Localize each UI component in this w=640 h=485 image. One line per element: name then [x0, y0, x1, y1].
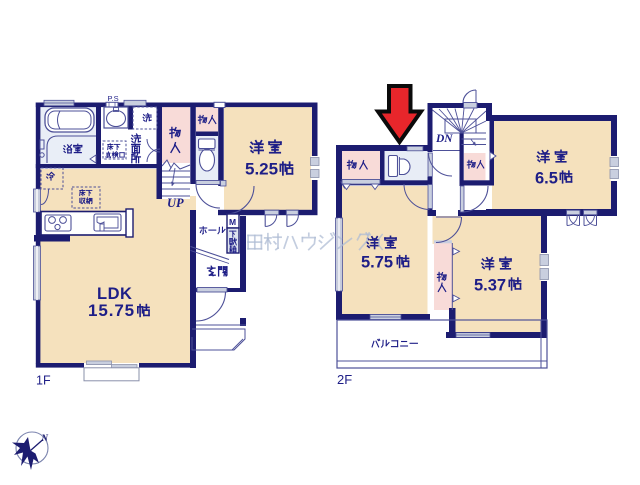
svg-text:P.S: P.S	[108, 94, 119, 103]
svg-text:DN: DN	[435, 133, 453, 145]
svg-text:UP: UP	[167, 196, 184, 210]
svg-text:N: N	[41, 433, 49, 443]
svg-text:2F: 2F	[337, 372, 352, 387]
svg-text:1F: 1F	[36, 374, 51, 388]
svg-text:5.25: 5.25	[245, 160, 278, 179]
svg-text:15.75: 15.75	[88, 301, 135, 320]
svg-text:M: M	[229, 217, 236, 227]
svg-text:5.37: 5.37	[474, 277, 506, 295]
svg-text:6.5: 6.5	[535, 170, 558, 188]
svg-text:5.75: 5.75	[361, 254, 393, 272]
